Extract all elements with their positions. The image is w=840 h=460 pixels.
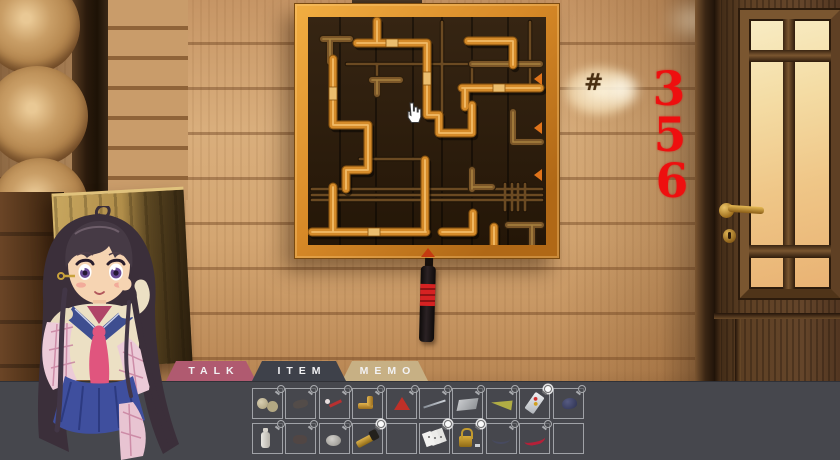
magnifier-icon[interactable]: [277, 420, 285, 428]
inventory-slot-3[interactable]: [319, 388, 350, 419]
magnifier-icon[interactable]: [477, 385, 485, 393]
tab-memo[interactable]: MEMO: [342, 361, 428, 381]
inventory-slot-11[interactable]: [252, 423, 283, 454]
door-handle[interactable]: [719, 201, 765, 221]
character-portrait: [12, 206, 184, 460]
magnifier-icon[interactable]: [310, 420, 318, 428]
wall-number-3: 6: [651, 158, 693, 205]
magnifier-icon[interactable]: [277, 385, 285, 393]
magnifier-icon[interactable]: [310, 385, 318, 393]
log-wall-corner: [0, 0, 188, 200]
inventory-slot-13[interactable]: [319, 423, 350, 454]
inventory-slot-8[interactable]: [486, 388, 517, 419]
bottom-arrow-icon: [421, 248, 435, 257]
inventory-slot-7[interactable]: [452, 388, 483, 419]
inventory-slot-1[interactable]: [252, 388, 283, 419]
inventory-slot-6[interactable]: [419, 388, 450, 419]
magnifier-icon[interactable]: [477, 420, 485, 428]
game-screen: # 3 5 6: [0, 0, 840, 460]
magnifier-icon[interactable]: [578, 385, 586, 393]
flashlight-beam-core: [596, 66, 648, 112]
door-keyhole[interactable]: [723, 229, 736, 243]
inventory-slot-5[interactable]: [386, 388, 417, 419]
magnifier-icon[interactable]: [411, 385, 419, 393]
magnifier-icon[interactable]: [511, 420, 519, 428]
inventory-grid: [252, 388, 584, 454]
pipe-maze-graphic: [308, 17, 546, 245]
log-wall-side: [104, 0, 188, 200]
magnifier-icon[interactable]: [444, 385, 452, 393]
glass-muntin: [749, 50, 831, 62]
door-panel-groove: [714, 313, 840, 319]
inventory-slot-12[interactable]: [285, 423, 316, 454]
puzzle-lever-handle[interactable]: [418, 258, 438, 344]
magnifier-icon[interactable]: [344, 385, 352, 393]
inventory-slot-10[interactable]: [553, 388, 584, 419]
glass-muntin: [749, 245, 831, 258]
inventory-slot-9[interactable]: [519, 388, 550, 419]
magnifier-icon[interactable]: [444, 420, 452, 428]
hand-cursor-icon: [404, 102, 422, 124]
inventory-slot-17[interactable]: [452, 423, 483, 454]
wall-number-1: 3: [648, 66, 690, 113]
magnifier-icon[interactable]: [544, 420, 552, 428]
magnifier-icon[interactable]: [544, 385, 552, 393]
tab-item[interactable]: ITEM: [252, 361, 346, 381]
wall-number-2: 5: [649, 112, 691, 159]
pipe-puzzle-board[interactable]: [294, 3, 560, 259]
magnifier-icon[interactable]: [377, 385, 385, 393]
inventory-slot-2[interactable]: [285, 388, 316, 419]
pipe-maze[interactable]: [308, 17, 546, 245]
lever-red-band: [420, 284, 436, 306]
inventory-slot-20[interactable]: [553, 423, 584, 454]
inventory-slot-19[interactable]: [519, 423, 550, 454]
door-glass-panel: [740, 10, 840, 298]
inventory-slot-4[interactable]: [352, 388, 383, 419]
magnifier-icon[interactable]: [511, 385, 519, 393]
magnifier-icon[interactable]: [377, 420, 385, 428]
inventory-slot-15[interactable]: [386, 423, 417, 454]
inventory-slot-18[interactable]: [486, 423, 517, 454]
magnifier-icon[interactable]: [344, 420, 352, 428]
wall-hash-mark: #: [584, 70, 603, 96]
inventory-slot-16[interactable]: [419, 423, 450, 454]
inventory-slot-14[interactable]: [352, 423, 383, 454]
log-end: [0, 0, 80, 74]
